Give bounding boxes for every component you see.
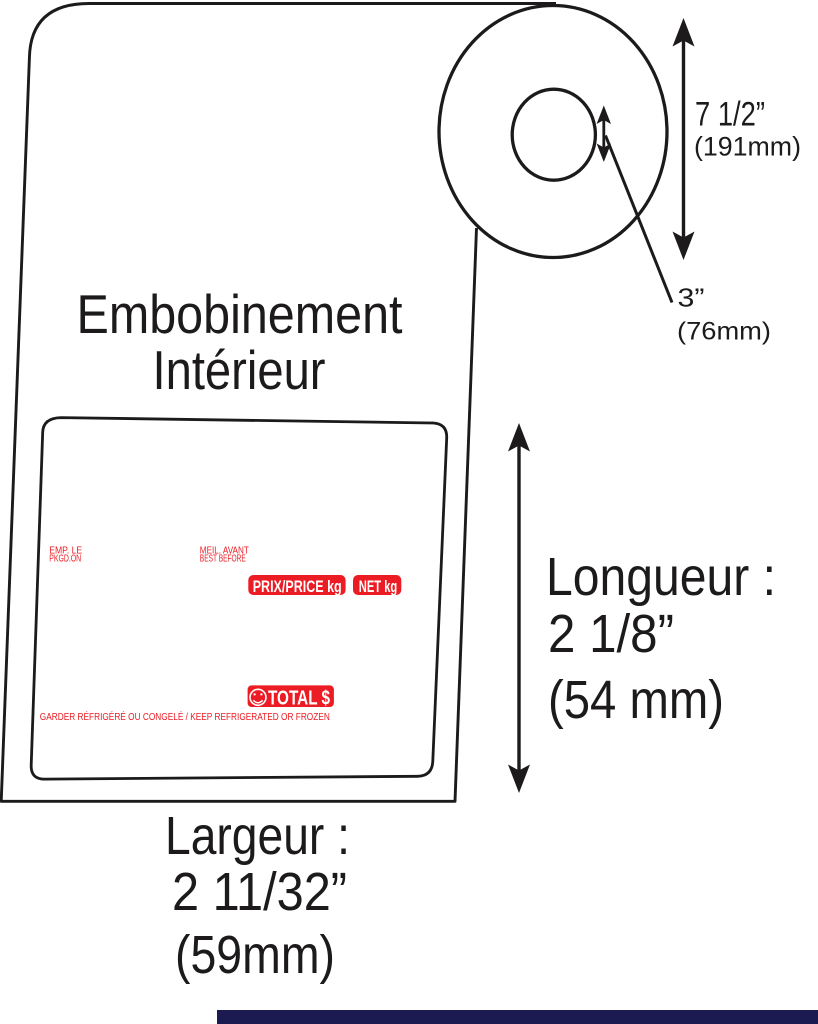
svg-text:(54 mm): (54 mm) xyxy=(548,670,724,730)
svg-text:2 1/8”: 2 1/8” xyxy=(548,604,674,664)
svg-text:GARDER RÉFRIGÉRÉ OU CONGELÉ /: GARDER RÉFRIGÉRÉ OU CONGELÉ / KEEP REFRI… xyxy=(40,710,330,723)
svg-text:(59mm): (59mm) xyxy=(175,925,335,985)
svg-text:TOTAL $: TOTAL $ xyxy=(268,687,330,710)
svg-text:NET kg: NET kg xyxy=(359,577,398,596)
svg-text:PRIX/PRICE kg: PRIX/PRICE kg xyxy=(253,577,342,596)
svg-text:(191mm): (191mm) xyxy=(694,132,801,162)
svg-text:Embobinement: Embobinement xyxy=(77,283,403,345)
svg-text:BEST BEFORE: BEST BEFORE xyxy=(200,554,246,565)
svg-text:Intérieur: Intérieur xyxy=(153,339,326,401)
svg-text:Longueur :: Longueur : xyxy=(546,547,776,607)
svg-text:3”: 3” xyxy=(678,283,705,313)
svg-text:(76mm): (76mm) xyxy=(677,318,771,346)
svg-text:7 1/2”: 7 1/2” xyxy=(695,96,765,134)
svg-text:Largeur :: Largeur : xyxy=(165,806,350,866)
svg-text:2 11/32”: 2 11/32” xyxy=(172,862,347,922)
svg-text:PKGD.ON: PKGD.ON xyxy=(49,554,81,565)
